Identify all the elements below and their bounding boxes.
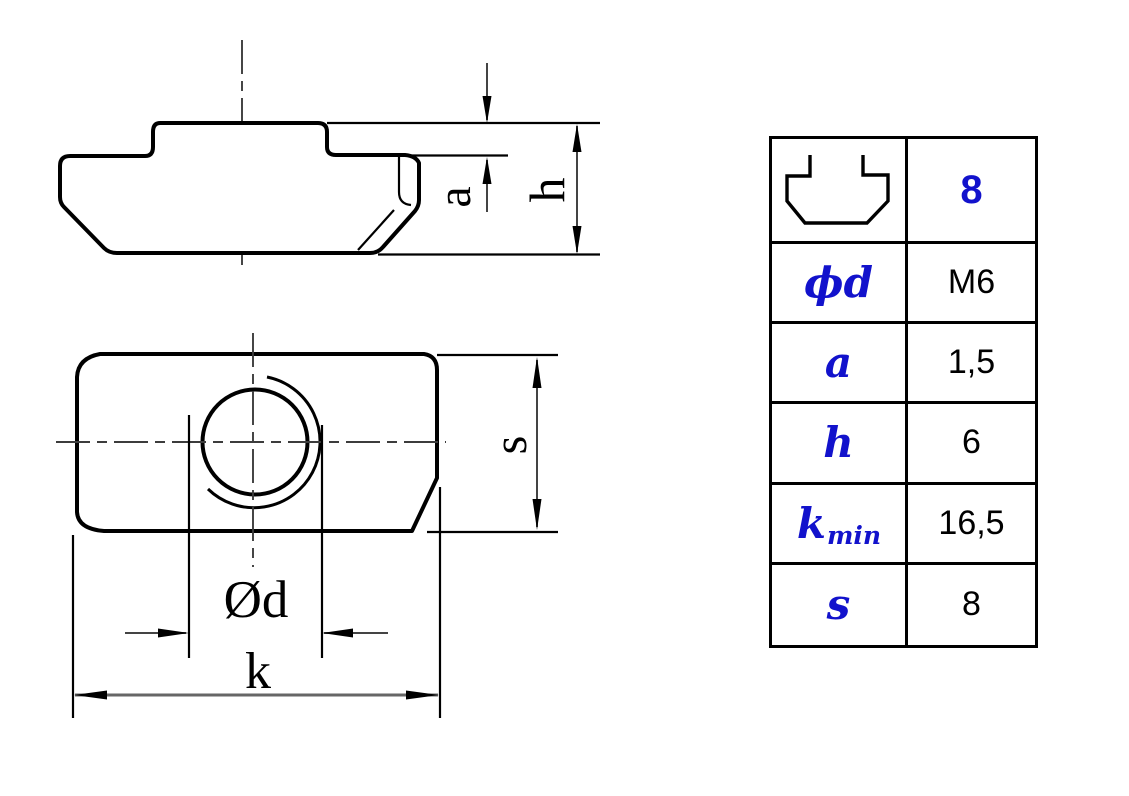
- spec-param-d-label: ϕd: [804, 258, 873, 307]
- spec-value-a: 1,5: [908, 324, 1035, 404]
- spec-value-h-text: 6: [962, 423, 981, 462]
- dim-label-a: a: [428, 186, 481, 207]
- spec-param-a-label: a: [825, 338, 852, 387]
- spec-value-d: M6: [908, 244, 1035, 324]
- dim-label-k: k: [245, 643, 271, 700]
- dim-label-s: s: [484, 436, 537, 455]
- spec-param-kmin-sub: min: [827, 521, 881, 550]
- spec-param-kmin: kmin: [772, 485, 908, 565]
- spec-value-s: 8: [908, 565, 1035, 645]
- spec-param-k-label: k: [797, 499, 826, 548]
- page: a h: [0, 0, 1129, 796]
- spec-param-d: ϕd: [772, 244, 908, 324]
- spec-value-d-text: M6: [948, 263, 995, 302]
- side-view-outline: [60, 123, 419, 253]
- t-slot-profile-icon: [784, 152, 894, 228]
- spec-value-a-text: 1,5: [948, 343, 995, 382]
- technical-drawing: a h: [0, 0, 660, 796]
- spec-value-kmin: 16,5: [908, 485, 1035, 565]
- dimension-s: s: [427, 355, 558, 532]
- profile-size-cell: 8: [908, 139, 1035, 244]
- dim-label-h: h: [519, 178, 575, 203]
- dim-label-d: Ød: [224, 571, 289, 629]
- spec-param-h: h: [772, 404, 908, 484]
- spec-value-s-text: 8: [962, 585, 981, 624]
- spec-param-s-label: s: [827, 580, 851, 629]
- profile-size: 8: [960, 168, 982, 213]
- spec-value-kmin-text: 16,5: [938, 504, 1004, 543]
- spec-param-h-label: h: [823, 418, 854, 467]
- dimension-a: a: [428, 63, 492, 212]
- dimension-h: h: [519, 124, 582, 254]
- spec-table: 8 ϕd M6 a 1,5 h 6 kmin 16,5: [769, 136, 1038, 648]
- profile-icon-cell: [772, 139, 908, 244]
- spec-param-s: s: [772, 565, 908, 645]
- top-view: s Ød k: [56, 333, 558, 718]
- side-view: a h: [60, 40, 600, 272]
- spec-value-h: 6: [908, 404, 1035, 484]
- spec-param-a: a: [772, 324, 908, 404]
